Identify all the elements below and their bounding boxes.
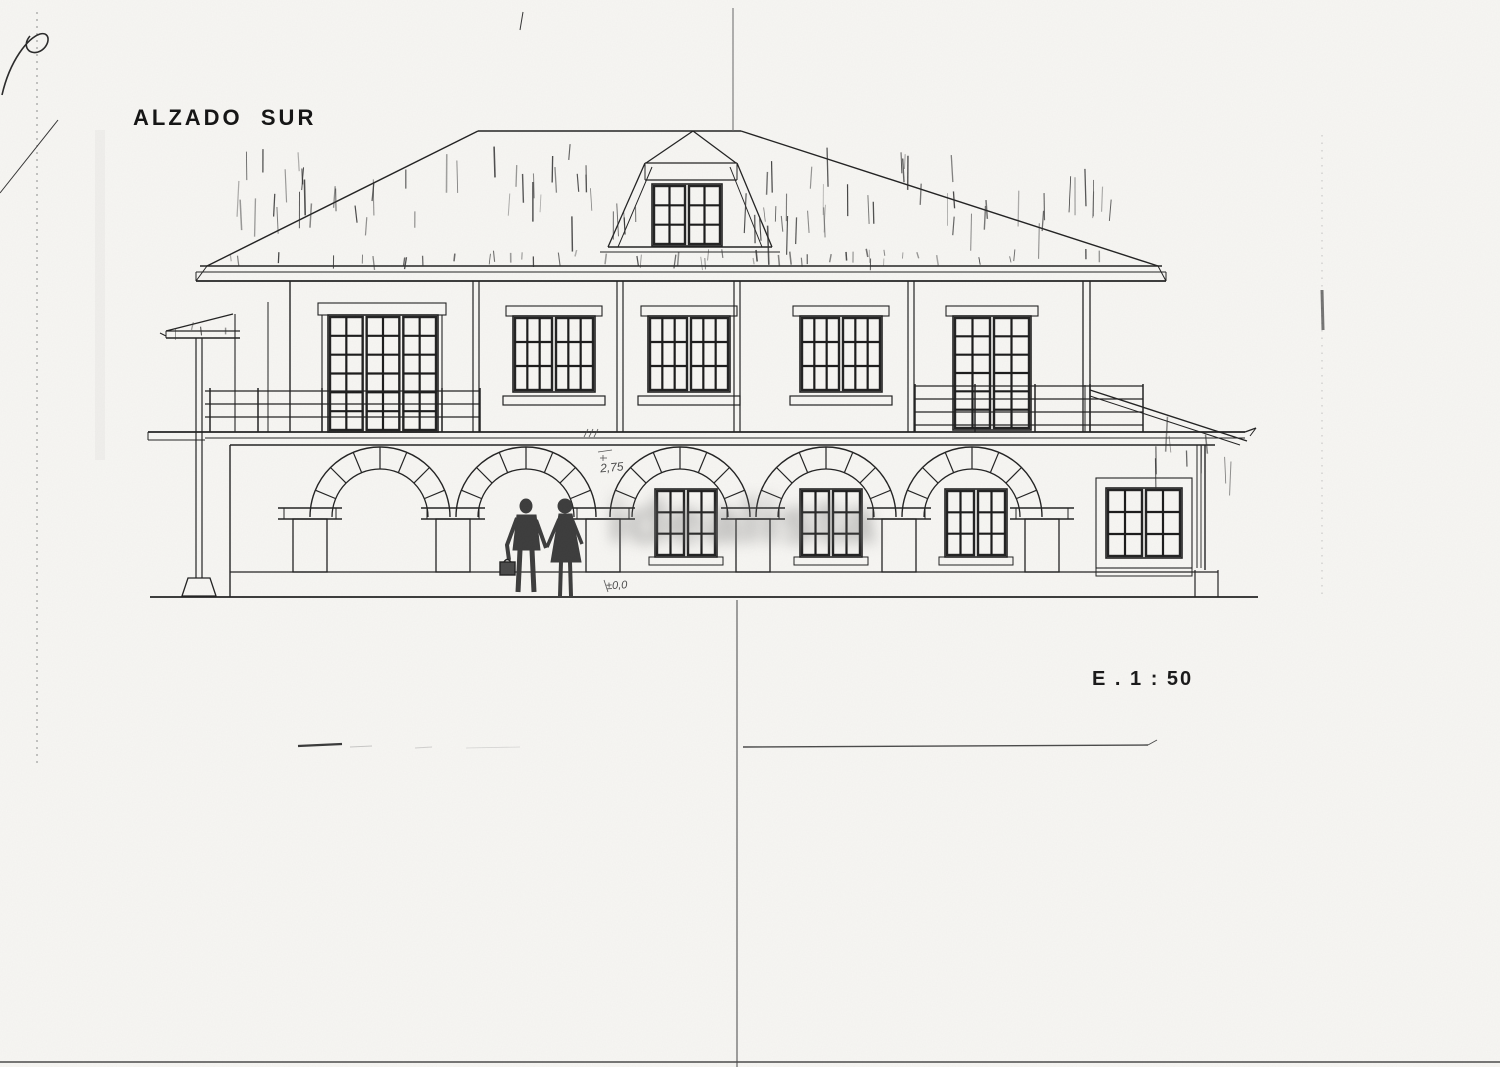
drawing-title: ALZADO SUR bbox=[133, 105, 316, 132]
scanned-sheet: 2,75±0,0 ALZADO SUR E . 1 : 50 idealista bbox=[0, 0, 1500, 1067]
scale-label: E . 1 : 50 bbox=[1092, 668, 1193, 691]
watermark-blurred: idealista bbox=[544, 486, 939, 557]
